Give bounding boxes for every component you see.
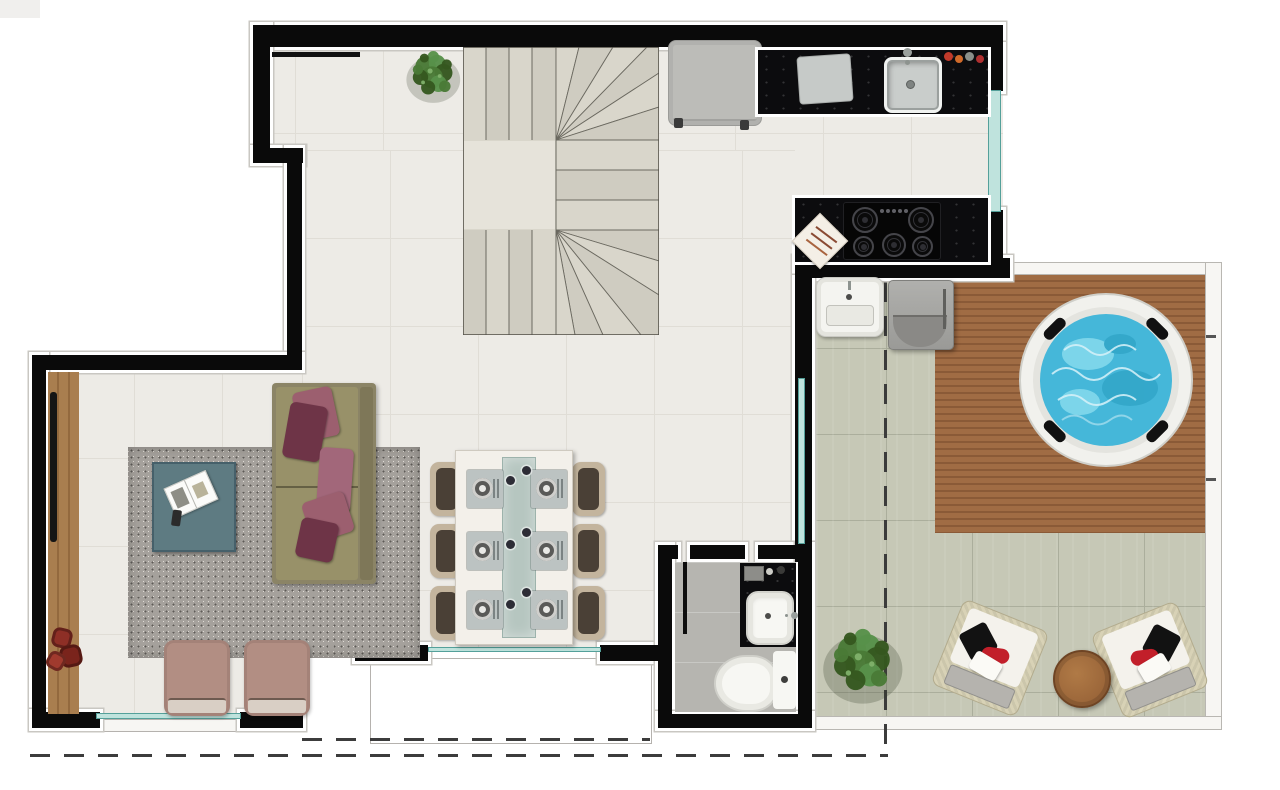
washing-machine [888, 280, 954, 350]
magazine-photo [192, 481, 209, 499]
wall-living-bottom-a [32, 712, 100, 728]
place-setting [531, 470, 567, 508]
fridge-handle-left [674, 118, 683, 128]
wall-living-left [32, 355, 46, 728]
terrace-parapet-bottom [812, 716, 1222, 730]
toiletry-jar [766, 568, 773, 575]
sofa-back [360, 387, 373, 580]
setback-dash-bottom [30, 754, 888, 757]
terrace-parapet-right [1205, 262, 1222, 730]
wine-glass [522, 528, 531, 537]
living-window-sill [95, 719, 242, 732]
wine-glass [506, 476, 515, 485]
burner-2 [908, 207, 934, 233]
burner-4 [882, 233, 906, 257]
gas-cooktop [843, 202, 941, 260]
wall-living-top [32, 355, 302, 370]
jacuzzi [1018, 292, 1194, 468]
condiment-3 [965, 52, 974, 61]
towel-pattern [815, 226, 837, 243]
staircase [463, 47, 659, 335]
wall-top [253, 25, 1003, 47]
cooktop-knob [892, 209, 896, 213]
burner-5 [912, 236, 933, 257]
artifact-corner [0, 0, 40, 18]
setback-dash-balcony [302, 738, 650, 741]
fridge-handle-right [740, 120, 749, 130]
dining-chair [572, 586, 605, 640]
toiletry-tray [744, 566, 764, 581]
condiment-4 [976, 55, 984, 63]
cooktop-knob [898, 209, 902, 213]
open-magazine [163, 470, 218, 518]
terrace-parapet-top [1005, 262, 1222, 275]
remote-control [171, 509, 182, 526]
cooktop-knob [880, 209, 884, 213]
washer-lid [893, 315, 947, 347]
armchair-left [164, 640, 230, 716]
round-side-table [1053, 650, 1111, 708]
shower-partition [683, 562, 687, 634]
throw-pillow [294, 516, 339, 563]
sink-drain [906, 80, 915, 89]
window-dining-south [428, 647, 601, 652]
utility-sink [816, 277, 884, 337]
wall-dining-bottom-b [600, 645, 658, 661]
place-setting [467, 591, 503, 629]
dining-chair [572, 462, 605, 516]
bath-faucet [791, 612, 798, 619]
dimension-tick [1206, 335, 1216, 338]
place-setting [467, 470, 503, 508]
kitchen-countertop [758, 50, 988, 114]
plant-terrace [816, 616, 906, 712]
place-setting [531, 591, 567, 629]
utility-sink-tray [826, 305, 874, 326]
refrigerator [668, 40, 762, 126]
dimension-tick [1206, 478, 1216, 481]
toilet-bowl [714, 655, 778, 712]
washer-handle [943, 289, 946, 329]
floor-plan [0, 0, 1280, 790]
toiletry-candle [777, 566, 785, 574]
coffee-table [152, 462, 236, 552]
wall-bath-bottom [658, 714, 812, 728]
place-setting [467, 532, 503, 570]
wall-bath-right [798, 545, 812, 728]
wine-glass [522, 588, 531, 597]
wine-glass [506, 600, 515, 609]
wine-glass [522, 466, 531, 475]
plant-indoor [400, 42, 464, 110]
window-kitchen-east [988, 90, 1001, 212]
dining-chair [572, 524, 605, 578]
condiment-1 [944, 52, 953, 61]
armchair-right [244, 640, 310, 716]
wall-alcove-left [253, 25, 270, 163]
cooktop-knob [886, 209, 890, 213]
utility-sink-drain [846, 294, 852, 300]
wall-bath-left [658, 545, 672, 728]
wall-bath-top-b [690, 545, 745, 559]
place-setting [531, 532, 567, 570]
closet-rail [272, 52, 360, 57]
balcony [370, 658, 652, 744]
burner-1 [852, 207, 878, 233]
toilet-flush-button [781, 676, 788, 683]
burner-3 [853, 236, 874, 257]
bath-sink-drain [765, 613, 771, 619]
magazine-photo [170, 487, 189, 509]
utility-faucet [848, 281, 851, 290]
cutting-board [796, 53, 853, 105]
kitchen-faucet [903, 48, 912, 57]
tv [50, 392, 57, 542]
wine-glass [506, 540, 515, 549]
door-terrace-west [798, 378, 805, 544]
condiment-2 [955, 55, 963, 63]
cooktop-knob [904, 209, 908, 213]
wall-mid-vertical [287, 148, 302, 370]
